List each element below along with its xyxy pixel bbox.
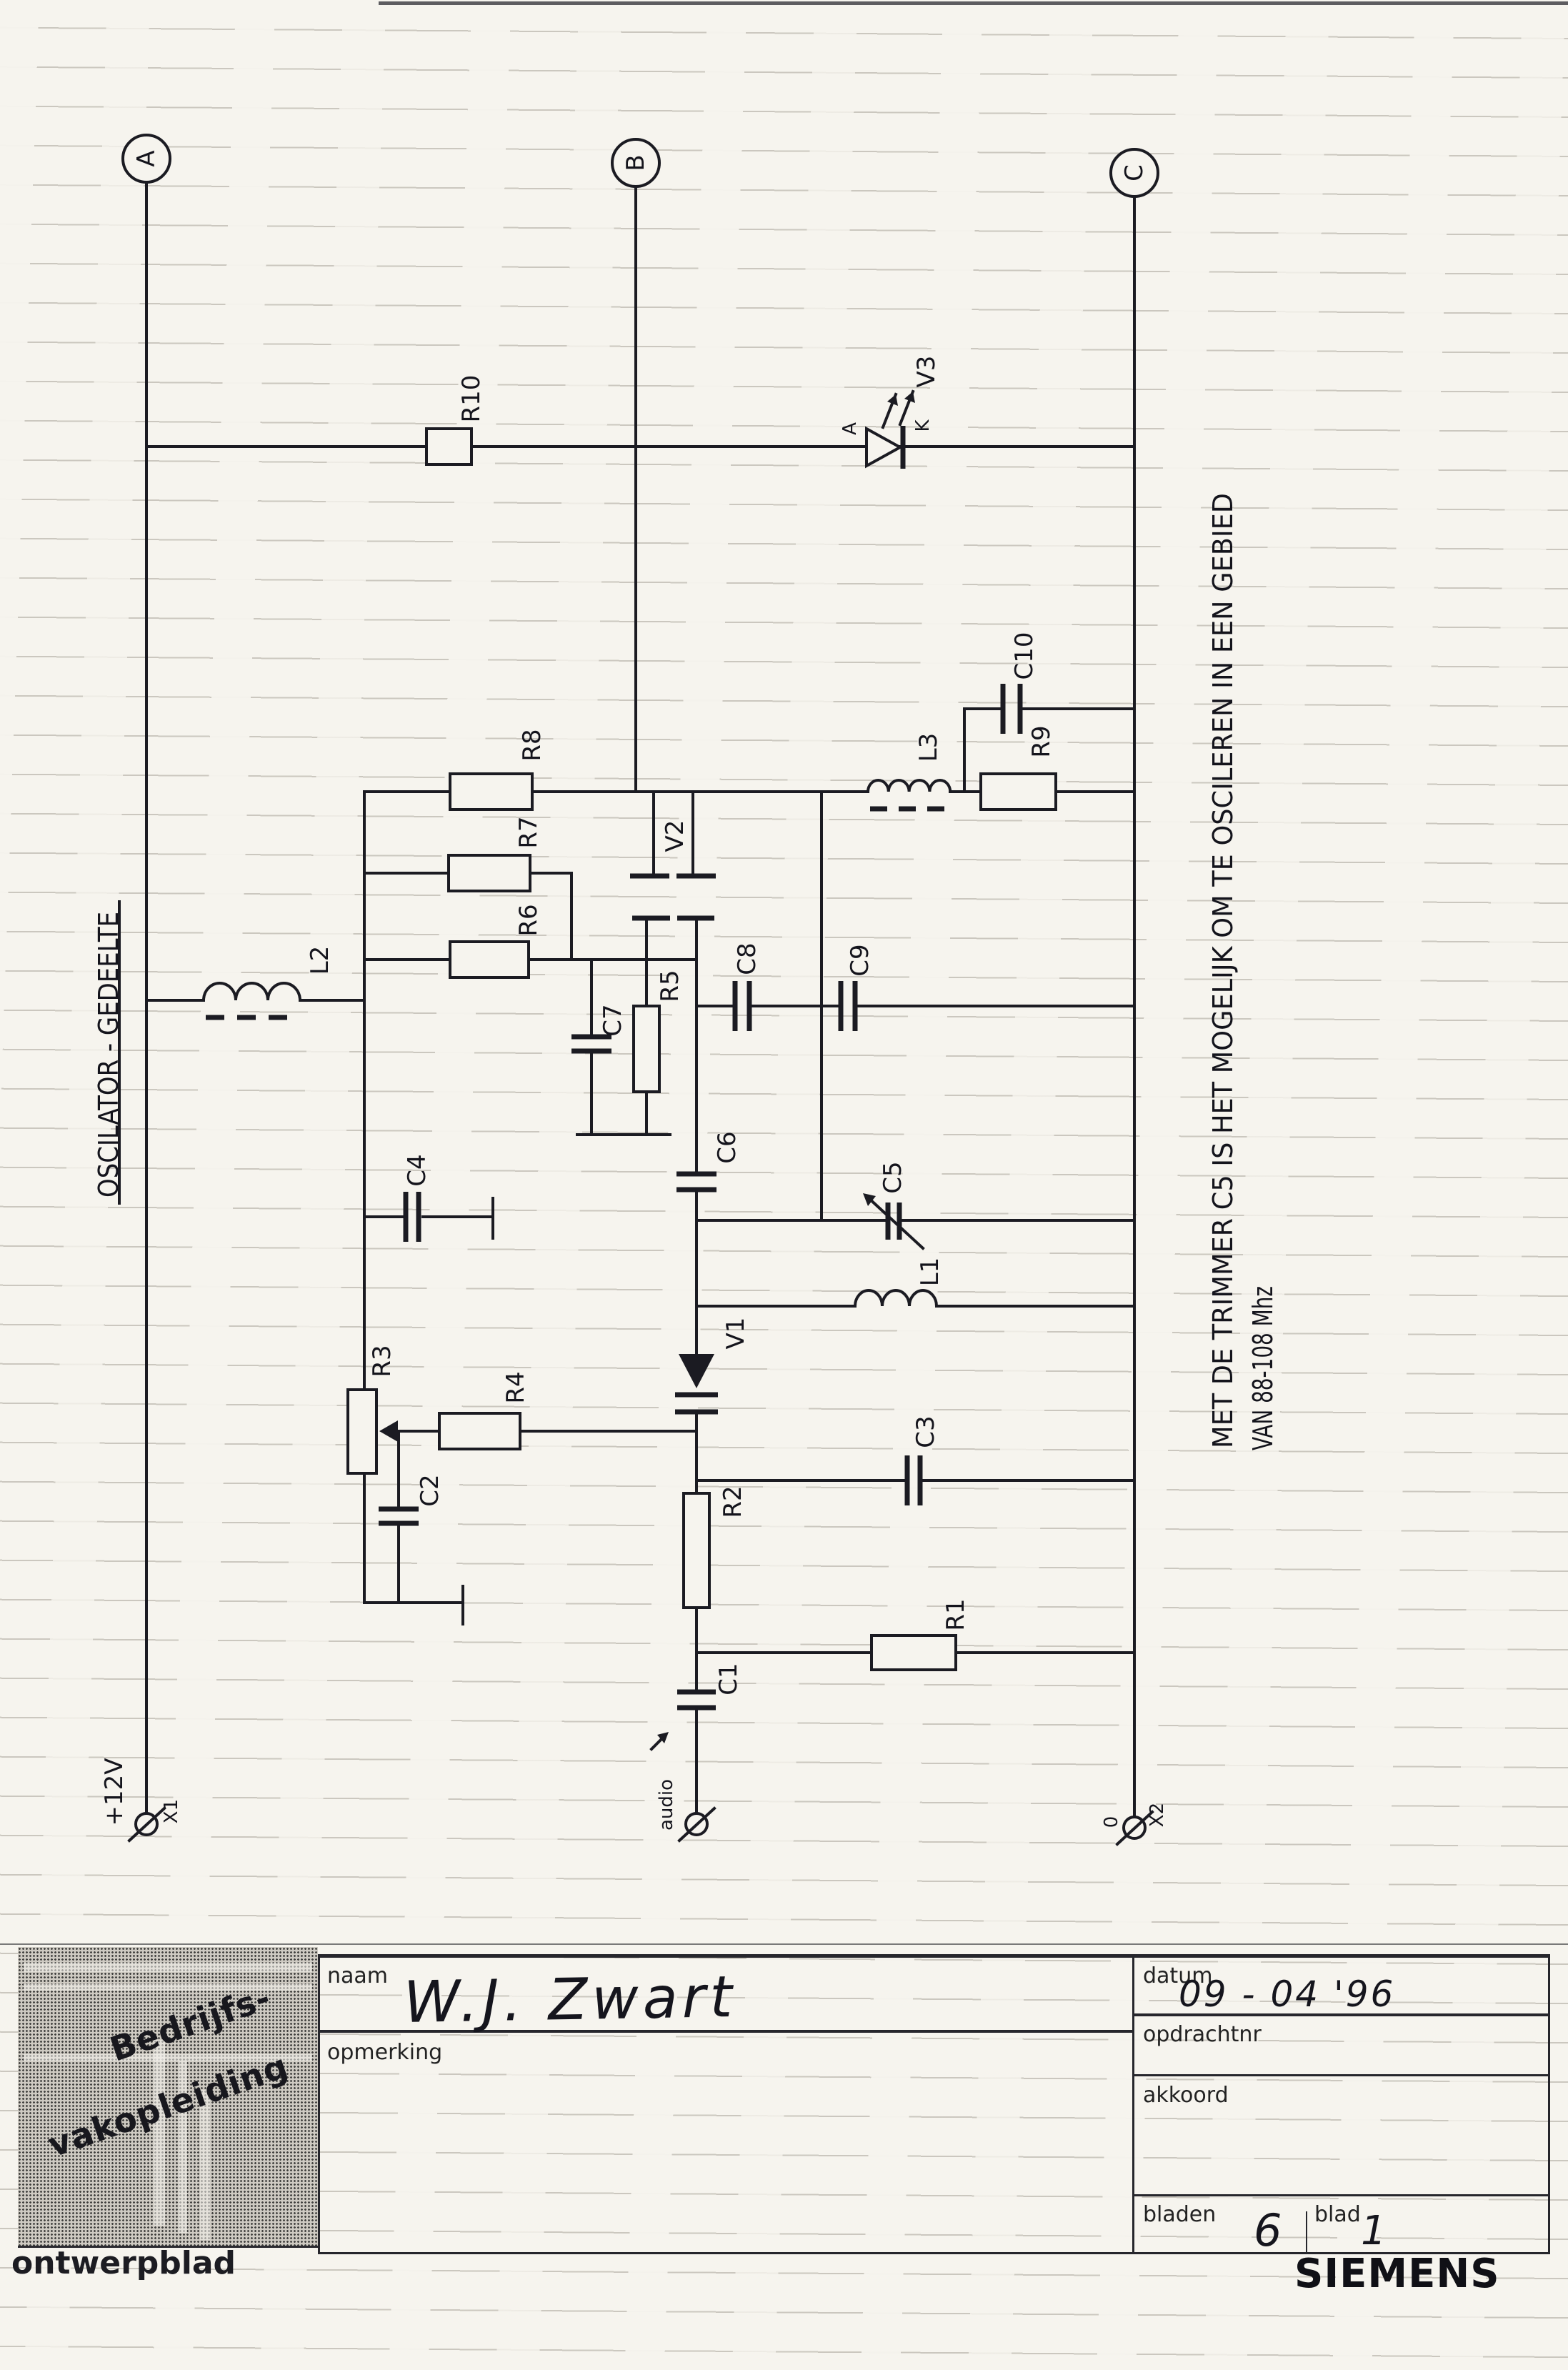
naam-label: naam xyxy=(327,1963,388,1988)
label-C10: C10 xyxy=(1010,632,1039,679)
label-R2: R2 xyxy=(719,1485,747,1518)
label-plus12v: +12V xyxy=(100,1758,129,1826)
label-V3: V3 xyxy=(912,356,941,388)
label-R7: R7 xyxy=(514,816,543,848)
note-line1: MET DE TRIMMER C5 IS HET MOGELIJK OM TE … xyxy=(1207,493,1239,1448)
frame-bottom-line xyxy=(0,1943,1568,1945)
label-R6: R6 xyxy=(514,904,543,936)
resistor-R9: R9 xyxy=(981,725,1056,810)
blad-label: blad xyxy=(1314,2202,1361,2227)
label-V3-cathode: K xyxy=(912,419,934,432)
terminal-B: B xyxy=(612,139,659,186)
wire-bias-bus xyxy=(364,792,463,1624)
inductor-L1: L1 xyxy=(696,1258,1134,1306)
label-0v: 0 xyxy=(1101,1816,1122,1828)
capacitor-C9 xyxy=(841,981,855,1031)
label-C4: C4 xyxy=(403,1154,431,1186)
label-R1: R1 xyxy=(942,1598,970,1630)
capacitor-C7: C7 xyxy=(571,960,627,1135)
terminal-c-label: C xyxy=(1120,164,1149,181)
bedrijfsvakopleiding-logo: Bedrijfs- vakopleiding xyxy=(18,1947,318,2248)
label-L1: L1 xyxy=(916,1258,944,1287)
label-C9: C9 xyxy=(846,944,874,976)
datum-value: 09 - 04 '96 xyxy=(1179,1973,1395,2015)
label-R5: R5 xyxy=(656,970,684,1002)
label-X1: X1 xyxy=(161,1799,182,1823)
label-R3: R3 xyxy=(368,1345,396,1377)
inductor-L2: L2 xyxy=(146,946,364,1017)
capacitor-C8 xyxy=(735,981,749,1031)
scanned-design-sheet: A B C R10 A K V3 xyxy=(0,0,1568,2370)
capacitor-C1: C1 xyxy=(677,1663,743,1813)
label-C6: C6 xyxy=(713,1131,741,1163)
capacitor-C10: C10 xyxy=(964,632,1134,792)
logo-line2: vakopleiding xyxy=(44,2046,294,2165)
capacitor-C3: C3 xyxy=(696,1415,1134,1505)
inductor-L3: L3 xyxy=(868,733,950,809)
label-R10: R10 xyxy=(457,375,486,423)
label-C3: C3 xyxy=(912,1415,940,1448)
label-audio: audio xyxy=(656,1779,677,1831)
label-C2: C2 xyxy=(416,1474,444,1506)
terminal-A: A xyxy=(123,135,170,182)
resistor-R5: R5 xyxy=(634,970,684,1135)
blad-value: 1 xyxy=(1361,2208,1387,2254)
label-R9: R9 xyxy=(1027,725,1056,757)
wire-c8-c9: C8 C9 xyxy=(696,942,1134,1031)
titleblock-right-border xyxy=(1548,1954,1550,2254)
resistor-R4: R4 xyxy=(439,1371,530,1449)
capacitor-C2: C2 xyxy=(379,1431,444,1603)
note-annotation: MET DE TRIMMER C5 IS HET MOGELIJK OM TE … xyxy=(1207,493,1279,1450)
terminal-C: C xyxy=(1111,149,1158,196)
resistor-R7: R7 xyxy=(364,816,571,960)
led-V3: A K V3 xyxy=(839,356,941,469)
akkoord-row-border xyxy=(1132,2194,1550,2196)
titleblock-divider-left xyxy=(318,1954,320,2254)
label-R8: R8 xyxy=(518,729,546,761)
resistor-R10: R10 xyxy=(426,375,486,464)
bladen-label: bladen xyxy=(1143,2202,1216,2227)
label-V1: V1 xyxy=(721,1318,750,1350)
label-C7: C7 xyxy=(599,1004,627,1036)
resistor-R1: R1 xyxy=(696,1598,1134,1670)
opmerking-label: opmerking xyxy=(327,2040,442,2065)
capacitor-C4: C4 xyxy=(364,1154,493,1242)
resistor-R2: R2 xyxy=(684,1485,747,1608)
terminal-a-label: A xyxy=(132,150,161,166)
resistor-R8: R8 xyxy=(450,729,546,810)
label-C1: C1 xyxy=(714,1663,743,1695)
titleblock-divider-datum xyxy=(1132,1954,1134,2254)
siemens-logo: SIEMENS xyxy=(1294,2251,1500,2297)
label-V2: V2 xyxy=(661,820,689,852)
akkoord-label: akkoord xyxy=(1143,2083,1229,2108)
terminal-audio: audio xyxy=(651,1732,714,1841)
label-R4: R4 xyxy=(501,1371,530,1403)
trimmer-C5: C5 xyxy=(696,1161,1134,1248)
naam-value: W.J. Zwart xyxy=(403,1963,737,2036)
label-V3-anode: A xyxy=(839,422,861,435)
schematic-title: OSCILATOR - GEDEELTE xyxy=(93,902,124,1203)
label-L2: L2 xyxy=(306,946,334,975)
opdrachtnr-row-border xyxy=(1132,2074,1550,2076)
sheet-type-label: ontwerpblad xyxy=(11,2245,236,2281)
label-X2: X2 xyxy=(1147,1803,1168,1827)
terminal-b-label: B xyxy=(621,154,650,171)
opdrachtnr-label: opdrachtnr xyxy=(1143,2022,1262,2047)
potentiometer-R3: R3 xyxy=(348,1345,696,1473)
note-line2: VAN 88-108 Mhz xyxy=(1247,1286,1279,1450)
terminal-plus12v: +12V X1 xyxy=(100,1758,182,1841)
bladen-value: 6 xyxy=(1254,2204,1282,2256)
label-C8: C8 xyxy=(733,942,761,975)
label-L3: L3 xyxy=(914,733,943,762)
bladen-blad-divider xyxy=(1306,2211,1307,2253)
label-C5: C5 xyxy=(879,1161,907,1193)
